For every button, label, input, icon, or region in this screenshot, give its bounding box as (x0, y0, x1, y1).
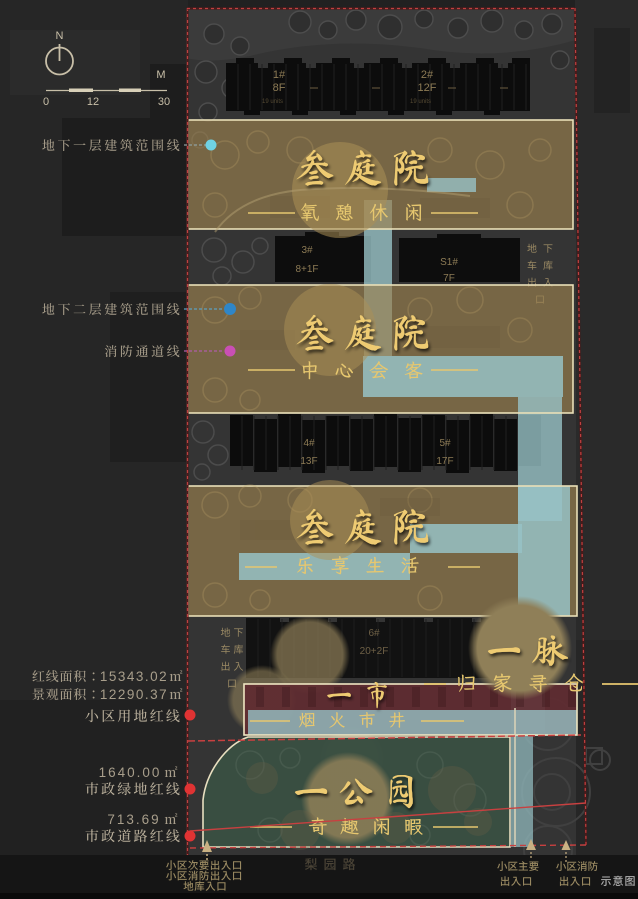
svg-text:12290.37: 12290.37 (100, 687, 168, 702)
svg-text:12: 12 (87, 96, 99, 108)
svg-text:5#: 5# (439, 438, 451, 449)
svg-text:19 units: 19 units (410, 99, 431, 105)
svg-text:N: N (56, 30, 64, 42)
svg-text:13F: 13F (300, 456, 317, 467)
svg-text:7F: 7F (443, 273, 455, 284)
svg-text:8F: 8F (273, 82, 286, 94)
svg-text:8+1F: 8+1F (295, 264, 318, 275)
svg-text:1640.00: 1640.00 (99, 765, 162, 780)
svg-text:19 units: 19 units (262, 99, 283, 105)
svg-text:12F: 12F (418, 82, 437, 94)
svg-text:4#: 4# (303, 438, 315, 449)
svg-text:2#: 2# (421, 69, 434, 81)
svg-text:0: 0 (43, 96, 49, 108)
svg-text:20+2F: 20+2F (360, 646, 389, 657)
svg-text:S1#: S1# (440, 257, 458, 268)
svg-text:15343.02: 15343.02 (100, 669, 168, 684)
svg-text:M: M (156, 69, 165, 81)
svg-text:1#: 1# (273, 69, 286, 81)
svg-text:6#: 6# (368, 628, 380, 639)
svg-text:713.69: 713.69 (107, 812, 160, 827)
svg-text:17F: 17F (436, 456, 453, 467)
svg-text:3#: 3# (301, 245, 313, 256)
svg-text:30: 30 (158, 96, 170, 108)
